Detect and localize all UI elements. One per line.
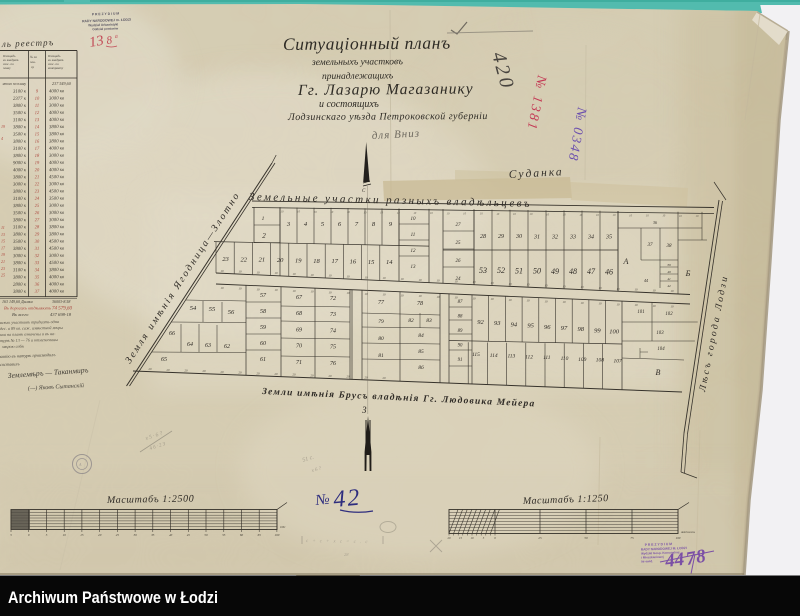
svg-text:3000 кв: 3000 кв: [49, 96, 64, 101]
svg-text:10: 10: [671, 305, 675, 309]
svg-text:88: 88: [458, 315, 463, 320]
svg-text:98: 98: [577, 326, 584, 333]
svg-text:10: 10: [311, 273, 315, 277]
svg-text:3500 к: 3500 к: [13, 132, 27, 137]
svg-text:84: 84: [418, 332, 424, 339]
svg-text:3800 к: 3800 к: [13, 232, 27, 237]
svg-text:пла-: пла-: [30, 60, 36, 64]
svg-text:10: 10: [473, 296, 477, 300]
svg-text:Archiwum Państwowe w Łodzi: Archiwum Państwowe w Łodzi: [8, 589, 218, 607]
svg-text:20: 20: [383, 376, 387, 380]
svg-text:10: 10: [401, 277, 405, 281]
svg-text:30: 30: [515, 234, 522, 240]
svg-text:31: 31: [35, 246, 40, 251]
svg-text:10: 10: [347, 291, 351, 295]
svg-text:77: 77: [378, 300, 385, 306]
svg-text:АнтСаженъ: АнтСаженъ: [680, 531, 696, 534]
svg-text:20: 20: [221, 370, 225, 374]
svg-text:10: 10: [275, 288, 279, 292]
svg-text:10: 10: [563, 284, 567, 288]
svg-text:3000 кв: 3000 кв: [49, 104, 64, 109]
svg-text:10: 10: [653, 304, 657, 308]
svg-text:3800 к: 3800 к: [13, 204, 27, 209]
svg-text:10: 10: [437, 295, 441, 299]
svg-text:3800 к: 3800 к: [13, 140, 27, 145]
svg-text:99: 99: [594, 327, 601, 334]
svg-text:29: 29: [498, 234, 504, 240]
svg-text:4000 кв: 4000 кв: [49, 146, 64, 151]
svg-text:10: 10: [617, 287, 621, 291]
svg-text:39: 39: [667, 263, 671, 267]
svg-text:19: 19: [295, 257, 302, 264]
svg-text:26: 26: [456, 259, 462, 264]
svg-text:10: 10: [419, 278, 423, 282]
svg-text:13: 13: [1, 232, 5, 237]
svg-text:91: 91: [458, 358, 463, 363]
svg-text:10: 10: [581, 301, 585, 305]
svg-text:3100 к: 3100 к: [13, 89, 27, 94]
svg-text:2: 2: [262, 232, 266, 240]
svg-text:3000 к: 3000 к: [13, 182, 27, 187]
svg-text:4000 кв: 4000 кв: [49, 289, 64, 294]
svg-text:44: 44: [644, 278, 648, 283]
svg-text:4000 кв: 4000 кв: [49, 161, 64, 166]
svg-text:20: 20: [167, 368, 171, 372]
svg-text:10: 10: [329, 274, 333, 278]
svg-text:21: 21: [259, 257, 266, 264]
svg-text:25: 25: [456, 241, 462, 246]
svg-text:20: 20: [275, 372, 279, 376]
svg-text:3800 к: 3800 к: [13, 125, 27, 130]
svg-text:3800 кв: 3800 кв: [49, 268, 64, 273]
svg-text:10: 10: [221, 286, 225, 290]
svg-text:Б: Б: [685, 269, 691, 278]
svg-text:А: А: [623, 257, 629, 266]
svg-text:61: 61: [260, 357, 266, 363]
svg-text:З: З: [362, 405, 367, 415]
svg-text:20: 20: [239, 371, 243, 375]
svg-text:20: 20: [257, 371, 261, 375]
svg-text:104: 104: [657, 347, 665, 352]
svg-text:20: 20: [347, 375, 351, 379]
svg-text:контракту: контракту: [48, 66, 64, 70]
svg-text:итого по плану: итого по плану: [3, 82, 27, 86]
svg-text:20: 20: [448, 536, 452, 540]
svg-text:20: 20: [98, 533, 102, 537]
svg-text:кои на планѣ означены и въ на-: кои на планѣ означены и въ на-: [0, 331, 56, 337]
svg-text:59: 59: [260, 325, 266, 331]
svg-text:3800 к: 3800 к: [13, 175, 27, 180]
svg-text:3000 кв: 3000 кв: [49, 182, 64, 187]
svg-text:65: 65: [161, 357, 167, 363]
svg-text:103: 103: [656, 331, 664, 336]
svg-text:4000 кв: 4000 кв: [49, 89, 64, 94]
svg-text:19: 19: [1, 124, 5, 129]
svg-text:51: 51: [515, 266, 523, 275]
svg-text:В: В: [656, 368, 661, 377]
svg-text:42: 42: [332, 485, 362, 513]
svg-text:1: 1: [262, 216, 265, 222]
svg-text:32: 32: [551, 234, 558, 240]
svg-text:20: 20: [329, 374, 333, 378]
svg-text:37: 37: [648, 243, 654, 248]
svg-text:85: 85: [418, 349, 424, 355]
svg-text:10: 10: [635, 303, 639, 307]
svg-text:38: 38: [667, 244, 673, 249]
svg-text:95: 95: [527, 323, 534, 330]
svg-text:63: 63: [205, 343, 211, 349]
svg-text:10: 10: [455, 279, 459, 283]
svg-text:13: 13: [88, 33, 105, 51]
svg-text:А: А: [78, 462, 82, 467]
svg-text:62: 62: [224, 344, 230, 350]
svg-text:76: 76: [330, 361, 336, 367]
svg-text:3800 кв: 3800 кв: [49, 132, 64, 137]
svg-text:10: 10: [221, 269, 225, 273]
svg-text:4000 кв: 4000 кв: [49, 118, 64, 123]
svg-text:3800 к: 3800 к: [13, 218, 27, 223]
svg-text:11: 11: [1, 225, 5, 230]
svg-text:35: 35: [151, 533, 155, 537]
svg-text:53: 53: [479, 266, 487, 275]
svg-text:94: 94: [511, 321, 518, 328]
svg-text:102: 102: [665, 312, 673, 317]
svg-text:54: 54: [190, 305, 197, 312]
svg-text:№: №: [314, 492, 331, 509]
svg-text:81: 81: [378, 353, 384, 359]
svg-text:3500 к: 3500 к: [13, 211, 27, 216]
svg-text:10: 10: [257, 287, 261, 291]
svg-text:10: 10: [491, 297, 495, 301]
svg-text:турѣ № 13 — 76 и отмежеваны: турѣ № 13 — 76 и отмежеваны: [0, 337, 58, 343]
svg-text:55: 55: [222, 533, 226, 537]
svg-text:3100 к: 3100 к: [13, 147, 27, 152]
svg-text:93: 93: [494, 320, 501, 327]
svg-text:15: 15: [1, 239, 5, 244]
svg-text:74: 74: [330, 327, 336, 334]
svg-text:3800 к: 3800 к: [13, 104, 27, 109]
svg-text:60: 60: [260, 341, 266, 347]
svg-text:45: 45: [187, 533, 191, 537]
svg-text:10: 10: [437, 279, 441, 283]
svg-text:100: 100: [275, 533, 280, 537]
svg-text:10: 10: [545, 299, 549, 303]
svg-text:21: 21: [35, 174, 40, 179]
svg-text:40: 40: [667, 270, 671, 274]
svg-text:25: 25: [1, 273, 5, 278]
svg-text:79: 79: [378, 319, 384, 325]
svg-text:10: 10: [401, 293, 405, 297]
svg-text:31: 31: [533, 234, 540, 240]
svg-text:100с: 100с: [280, 526, 286, 529]
svg-text:10: 10: [347, 275, 351, 279]
svg-text:Въ всего: Въ всего: [12, 312, 29, 317]
svg-text:3000 кв: 3000 кв: [49, 211, 64, 216]
svg-text:ль реестръ: ль реестръ: [1, 37, 55, 49]
svg-text:4500 кв: 4500 кв: [49, 261, 64, 266]
svg-text:36: 36: [653, 220, 657, 225]
svg-text:15: 15: [368, 259, 375, 266]
svg-text:3800 кв: 3800 кв: [49, 139, 64, 144]
svg-text:4500 кв: 4500 кв: [49, 189, 64, 194]
svg-text:№ по: № по: [29, 55, 37, 59]
svg-text:3800 к: 3800 к: [13, 275, 27, 280]
svg-text:17: 17: [331, 258, 338, 265]
svg-text:10: 10: [311, 290, 315, 294]
svg-text:70: 70: [296, 344, 302, 350]
svg-text:40: 40: [169, 533, 173, 537]
svg-text:20: 20: [311, 373, 315, 377]
svg-text:115: 115: [472, 352, 480, 358]
svg-text:90: 90: [458, 344, 463, 349]
svg-text:10: 10: [635, 288, 639, 292]
svg-text:41: 41: [667, 277, 671, 281]
svg-text:22: 22: [240, 256, 247, 263]
svg-text:10: 10: [599, 286, 603, 290]
svg-text:3800 кв: 3800 кв: [49, 232, 64, 237]
svg-text:100: 100: [609, 329, 620, 336]
svg-text:10: 10: [527, 283, 531, 287]
svg-text:75: 75: [630, 536, 634, 540]
svg-text:109: 109: [578, 357, 587, 363]
svg-text:10: 10: [383, 276, 387, 280]
svg-text:46: 46: [605, 267, 613, 276]
svg-text:Въ дорогахъ отдѣляютъ: Въ дорогахъ отдѣляютъ: [4, 306, 52, 311]
svg-text:25: 25: [538, 536, 542, 540]
svg-text:2377 к: 2377 к: [13, 97, 27, 102]
svg-text:30: 30: [134, 533, 138, 537]
svg-text:50: 50: [533, 267, 541, 276]
svg-text:11: 11: [35, 103, 39, 108]
svg-text:4000 кв: 4000 кв: [49, 111, 64, 116]
svg-text:13: 13: [411, 265, 417, 270]
svg-text:56: 56: [228, 309, 235, 316]
svg-text:49: 49: [551, 267, 559, 276]
svg-text:72: 72: [330, 296, 336, 302]
svg-text:66: 66: [169, 331, 175, 337]
svg-text:92: 92: [477, 319, 484, 326]
svg-text:4500 кв: 4500 кв: [49, 175, 64, 180]
svg-text:4500 кв: 4500 кв: [49, 247, 64, 252]
svg-text:10: 10: [257, 270, 261, 274]
svg-text:57: 57: [260, 293, 267, 299]
svg-text:3800 к: 3800 к: [13, 247, 27, 252]
svg-text:3100 к: 3100 к: [13, 118, 27, 123]
svg-text:80: 80: [378, 336, 384, 342]
svg-text:3000 к: 3000 к: [13, 254, 27, 259]
svg-text:87: 87: [458, 300, 463, 305]
svg-text:9000 к: 9000 к: [13, 161, 27, 166]
svg-text:3000 кв: 3000 кв: [49, 254, 64, 259]
svg-text:3800 к: 3800 к: [13, 190, 27, 195]
svg-text:10: 10: [383, 293, 387, 297]
svg-text:для Вниз: для Вниз: [372, 127, 421, 142]
svg-text:65: 65: [258, 533, 262, 537]
svg-text:4500 кв: 4500 кв: [49, 239, 64, 244]
svg-text:97: 97: [561, 325, 568, 332]
svg-text:10: 10: [671, 289, 675, 293]
svg-text:55: 55: [209, 306, 216, 313]
svg-text:10: 10: [471, 536, 475, 540]
svg-text:52: 52: [497, 266, 505, 275]
svg-text:3500 кв: 3500 кв: [49, 197, 64, 202]
svg-text:83: 83: [426, 318, 432, 324]
svg-text:составилъ: составилъ: [0, 361, 20, 367]
svg-text:100: 100: [676, 536, 681, 540]
svg-text:86: 86: [418, 365, 424, 371]
svg-text:4000 к: 4000 к: [13, 168, 27, 173]
svg-text:50: 50: [584, 536, 588, 540]
svg-text:4000 кв: 4000 кв: [49, 168, 64, 173]
svg-text:10: 10: [509, 298, 513, 302]
svg-text:28: 28: [480, 234, 486, 240]
svg-text:10: 10: [63, 533, 67, 537]
svg-text:47: 47: [587, 267, 596, 276]
svg-text:10: 10: [329, 290, 333, 294]
svg-text:4000 кв: 4000 кв: [49, 275, 64, 280]
svg-text:71: 71: [296, 360, 302, 366]
svg-text:3100 к: 3100 к: [13, 197, 27, 202]
svg-text:14: 14: [386, 259, 393, 266]
svg-text:Nr ewid.: Nr ewid.: [641, 559, 653, 563]
svg-text:20: 20: [277, 257, 284, 264]
svg-text:3800 к: 3800 к: [13, 154, 27, 159]
svg-text:10: 10: [581, 285, 585, 289]
svg-text:82: 82: [408, 318, 414, 324]
svg-text:42: 42: [667, 284, 671, 288]
svg-text:10: 10: [239, 287, 243, 291]
svg-text:10: 10: [473, 280, 477, 284]
svg-text:69: 69: [296, 327, 302, 333]
svg-text:108: 108: [596, 358, 605, 364]
svg-text:75: 75: [330, 345, 336, 351]
svg-text:3000 кв: 3000 кв: [49, 204, 64, 209]
svg-text:10: 10: [293, 272, 297, 276]
svg-text:20: 20: [203, 369, 207, 373]
svg-text:101: 101: [637, 310, 644, 315]
svg-text:28: 28: [344, 552, 349, 557]
svg-text:15: 15: [459, 536, 463, 540]
svg-text:3100 к: 3100 к: [13, 225, 27, 230]
svg-text:10: 10: [617, 303, 621, 307]
svg-text:10: 10: [455, 296, 459, 300]
svg-text:3000 кв: 3000 кв: [49, 154, 64, 159]
svg-text:земельныхъ участковъ: земельныхъ участковъ: [311, 57, 403, 68]
svg-text:3000 кв: 3000 кв: [49, 218, 64, 223]
svg-text:64: 64: [187, 341, 193, 348]
svg-text:20: 20: [293, 373, 297, 377]
svg-text:58: 58: [260, 309, 266, 315]
svg-text:33: 33: [569, 235, 576, 241]
svg-text:Гг. Лазарю Магазанику: Гг. Лазарю Магазанику: [297, 80, 474, 99]
svg-text:16: 16: [350, 258, 357, 265]
svg-text:10: 10: [293, 289, 297, 293]
svg-text:111: 111: [543, 355, 551, 361]
svg-text:21: 21: [1, 259, 5, 264]
svg-text:мѣрою себѣ: мѣрою себѣ: [1, 344, 24, 349]
svg-text:10: 10: [275, 271, 279, 275]
svg-text:3800 кв: 3800 кв: [49, 125, 64, 130]
svg-text:4: 4: [1, 136, 3, 141]
svg-text:113: 113: [507, 354, 515, 360]
svg-text:10: 10: [411, 217, 417, 222]
svg-text:78: 78: [417, 301, 423, 307]
svg-text:36003-8.58: 36003-8.58: [52, 299, 70, 304]
svg-text:107: 107: [613, 358, 622, 364]
svg-text:10: 10: [239, 270, 243, 274]
svg-text:3800 к: 3800 к: [13, 290, 27, 295]
svg-text:11: 11: [411, 233, 416, 238]
svg-text:10: 10: [599, 302, 603, 306]
svg-text:27: 27: [456, 223, 462, 228]
svg-text:89: 89: [458, 329, 463, 334]
svg-text:19: 19: [1, 252, 5, 257]
svg-text:25: 25: [116, 533, 120, 537]
svg-text:принадлежащихъ: принадлежащихъ: [322, 70, 393, 82]
svg-text:96: 96: [544, 324, 551, 331]
svg-text:67: 67: [296, 295, 303, 301]
svg-text:10: 10: [527, 299, 531, 303]
svg-text:12: 12: [411, 249, 417, 254]
svg-text:Масштабъ 1:2500: Масштабъ 1:2500: [106, 493, 195, 506]
svg-text:3500 к: 3500 к: [13, 111, 27, 116]
svg-text:437 698-18: 437 698-18: [50, 312, 72, 317]
svg-text:20: 20: [149, 367, 153, 371]
svg-text:60: 60: [240, 533, 244, 537]
svg-text:Лодзинскаго уѣзда Петроковской: Лодзинскаго уѣзда Петроковской губерніи: [287, 111, 488, 123]
svg-text:15: 15: [80, 533, 84, 537]
svg-text:плану: плану: [3, 66, 11, 70]
svg-text:20: 20: [185, 369, 189, 373]
svg-text:10: 10: [563, 300, 567, 304]
svg-text:74 579,60: 74 579,60: [52, 307, 73, 312]
svg-text:3500 к: 3500 к: [13, 240, 27, 245]
svg-text:112: 112: [525, 354, 533, 360]
svg-text:34: 34: [587, 234, 594, 241]
svg-text:110: 110: [561, 356, 569, 362]
svg-text:114: 114: [490, 352, 498, 359]
svg-text:50: 50: [204, 533, 208, 537]
svg-text:4000 кв: 4000 кв: [49, 282, 64, 287]
svg-text:10: 10: [653, 288, 657, 292]
svg-text:18: 18: [313, 258, 320, 265]
svg-text:3800 к: 3800 к: [13, 261, 27, 266]
svg-text:и состоящихъ: и состоящихъ: [319, 99, 379, 110]
svg-text:73: 73: [330, 312, 336, 318]
svg-text:всѣхъ участковъ тридцать одна: всѣхъ участковъ тридцать одна: [0, 319, 59, 325]
svg-text:3100 к: 3100 к: [13, 268, 27, 273]
svg-text:68: 68: [296, 311, 302, 317]
svg-text:10: 10: [491, 281, 495, 285]
svg-text:23: 23: [222, 256, 229, 263]
svg-text:Ситуаціонный планъ: Ситуаціонный планъ: [283, 33, 451, 54]
svg-text:23: 23: [1, 266, 5, 271]
svg-text:48: 48: [569, 267, 577, 276]
svg-text:2800 к: 2800 к: [13, 283, 27, 288]
svg-text:10: 10: [509, 282, 513, 286]
svg-text:10: 10: [419, 294, 423, 298]
svg-text:35: 35: [605, 235, 612, 241]
svg-text:10: 10: [545, 284, 549, 288]
svg-text:3800 кв: 3800 кв: [49, 225, 64, 230]
